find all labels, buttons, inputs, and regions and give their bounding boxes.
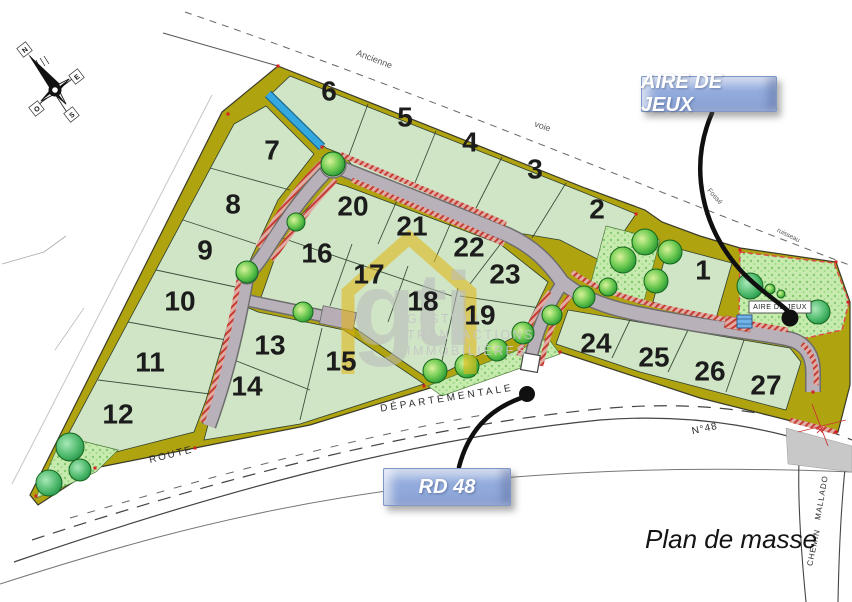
boundary-marker [35,495,38,498]
tree-icon [644,269,668,293]
tree-icon [56,433,84,461]
lot-number-11: 11 [135,347,165,378]
tree-icon [573,286,595,308]
old-way-label-2: voie [533,119,552,134]
rd48-callout-button[interactable]: RD 48 [383,468,511,506]
page-title: Plan de masse [645,524,825,555]
compass-rose: N E S O [17,42,84,122]
lot-number-15: 15 [325,346,356,377]
tree-icon [599,278,617,296]
lot-number-14: 14 [231,371,263,402]
playground-pointer-dot [782,310,799,327]
boundary-marker [739,249,742,252]
lot-number-1: 1 [695,255,711,286]
boundary-marker [194,447,197,450]
tree-icon [36,470,62,496]
rd48-pointer-dot [519,386,535,402]
boundary-marker [635,213,638,216]
tree-icon [69,459,91,481]
lot-number-5: 5 [397,102,413,133]
lot-number-19: 19 [464,300,495,331]
boundary-marker [321,146,324,149]
boundary-marker [94,467,97,470]
tree-icon [287,213,305,231]
tree-icon [236,261,258,283]
tree-icon [293,302,313,322]
lot-number-20: 20 [337,191,368,222]
lot-number-21: 21 [396,211,427,242]
lot-number-26: 26 [694,356,725,387]
lot-number-25: 25 [638,342,669,373]
lot-number-9: 9 [197,235,213,266]
tree-icon [542,305,562,325]
old-way-label-1: Ancienne [355,48,394,71]
stream-label: ruisseau [776,227,801,244]
playground-callout-button[interactable]: AIRE DE JEUX [641,76,777,112]
boundary-marker [277,65,280,68]
lot-number-3: 3 [527,154,543,185]
lot-number-12: 12 [102,399,133,430]
lot-number-23: 23 [489,259,520,290]
lot-number-10: 10 [164,286,195,317]
lot-number-13: 13 [254,330,285,361]
road-number-label: N°48 [691,421,719,437]
boundary-marker [423,385,426,388]
chemin-name-label: MALLADO [813,475,830,521]
lot-number-27: 27 [750,370,781,401]
boundary-marker [559,351,562,354]
tree-icon [321,152,345,176]
plan-de-masse-page: ROUTE DÉPARTEMENTALE N°48 CHEMIN MALLADO… [0,0,852,602]
retention-basin [737,315,752,328]
lot-number-8: 8 [225,189,241,220]
lot-number-6: 6 [321,76,337,107]
lot-number-7: 7 [264,135,280,166]
playground-callout-label: AIRE DE JEUX [641,71,777,117]
tree-icon [610,247,636,273]
boundary-marker [812,391,815,394]
boundary-marker [227,113,230,116]
lot-number-2: 2 [589,194,605,225]
lot-number-4: 4 [462,127,478,158]
tree-icon [777,290,785,298]
ditch-label: Fossé [705,187,723,206]
lot-number-17: 17 [353,259,384,290]
lot-number-24: 24 [580,328,612,359]
rd48-pointer-line [459,398,521,467]
tree-icon [632,229,658,255]
watermark-line3: IMMOBILIÈRES [407,343,527,358]
lot-number-22: 22 [453,232,484,263]
lot-number-16: 16 [301,238,332,269]
tree-icon [658,240,682,264]
boundary-marker [835,431,838,434]
lot-number-18: 18 [407,286,438,317]
boundary-marker [847,301,850,304]
boundary-marker [835,261,838,264]
rd48-callout-label: RD 48 [419,476,476,499]
